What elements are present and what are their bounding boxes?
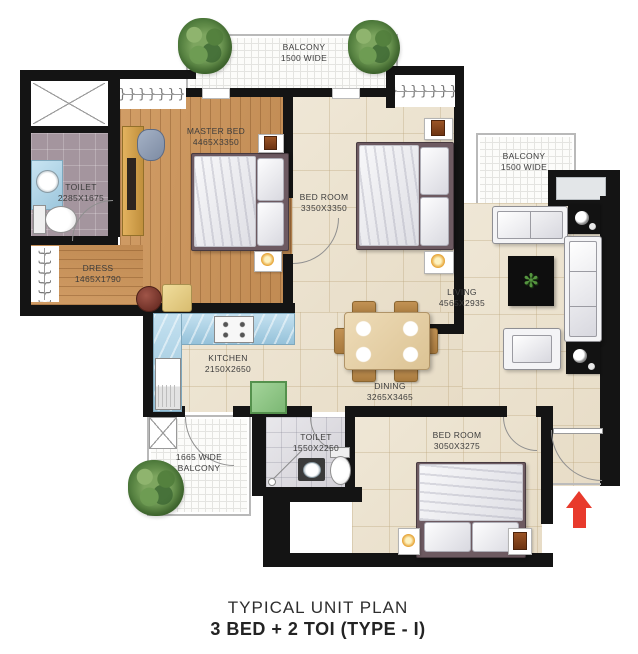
shaft-cross-icon <box>33 83 105 124</box>
side-table-lamp <box>566 342 600 374</box>
bed-pillow <box>420 147 449 195</box>
wall <box>541 406 553 524</box>
sofa-cushions <box>512 335 552 363</box>
balcony-door-gap <box>202 88 230 99</box>
room-dim: 1500 WIDE <box>281 53 327 64</box>
sofa-divider <box>569 271 597 272</box>
bed-pillow <box>424 522 471 552</box>
room-name: MASTER BED <box>187 126 245 137</box>
label-master-bed: MASTER BED 4465X3350 <box>187 126 245 147</box>
balcony-door-gap <box>332 88 360 99</box>
label-dining: DINING 3265X3465 <box>367 381 413 402</box>
sofa-cushions <box>569 241 597 337</box>
lamp-icon <box>261 253 274 266</box>
refrigerator <box>155 358 181 410</box>
room-name: BED ROOM <box>300 192 349 203</box>
shower-drain-icon <box>268 478 276 486</box>
stove-hob-icon <box>214 316 254 343</box>
sofa-divider <box>569 306 597 307</box>
lamp-icon <box>264 136 277 150</box>
dresser <box>127 158 136 210</box>
room-name: BALCONY <box>281 42 327 53</box>
room-dim: 1500 WIDE <box>501 162 547 173</box>
sofa-2-seater <box>492 206 568 244</box>
room-name: DRESS <box>75 263 121 274</box>
wall <box>108 70 196 79</box>
room-dim: 1465X1790 <box>75 274 121 285</box>
floor-plan: BALCONY 1500 WIDE BALCONY 1500 WIDE MAST… <box>0 0 638 654</box>
plan-title: TYPICAL UNIT PLAN <box>228 598 408 618</box>
coffee-table-plant <box>508 256 554 306</box>
lamp-icon <box>513 532 527 550</box>
room-dim: BALCONY <box>176 463 222 474</box>
label-toilet-1: TOILET 2285X1675 <box>58 182 104 203</box>
room-name: TOILET <box>58 182 104 193</box>
wardrobe-hangers-icon <box>31 246 59 302</box>
tree-icon <box>178 18 232 74</box>
wall <box>386 66 395 108</box>
lamp-icon <box>402 534 415 547</box>
room-name: BED ROOM <box>433 430 482 441</box>
washbasin-bowl <box>303 462 321 478</box>
side-table-lamp <box>568 204 600 234</box>
lamp-icon <box>431 120 445 136</box>
tree-icon <box>348 20 400 74</box>
bed-pillow <box>257 202 284 246</box>
shaft-box-icon <box>149 417 177 449</box>
label-dress: DRESS 1465X1790 <box>75 263 121 284</box>
room-name: TOILET <box>293 432 339 443</box>
washbasin-icon <box>36 170 59 193</box>
label-kitchen: KITCHEN 2150X2650 <box>205 353 251 374</box>
room-dim: 3350X3350 <box>300 203 349 214</box>
room-name: BALCONY <box>501 151 547 162</box>
label-bed-room-3: BED ROOM 3050X3275 <box>433 430 482 451</box>
wall <box>600 196 620 486</box>
entry-arrow-icon <box>573 507 586 528</box>
wc-bowl <box>330 456 351 485</box>
wardrobe-hangers-icon <box>120 79 186 109</box>
room-dim: 4565X2935 <box>439 298 485 309</box>
room-dim: 2285X1675 <box>58 193 104 204</box>
label-living: LIVING 4565X2935 <box>439 287 485 308</box>
bed-pillow <box>257 158 284 201</box>
wc-bowl <box>45 206 77 233</box>
label-toilet-2: TOILET 1550X2250 <box>293 432 339 453</box>
wall <box>345 406 507 417</box>
lamp-icon <box>431 254 445 268</box>
entry-arrow-icon <box>566 491 592 508</box>
entry-window <box>556 177 606 200</box>
wall <box>143 303 153 415</box>
label-balcony-top: BALCONY 1500 WIDE <box>281 42 327 63</box>
wc-icon <box>33 204 77 234</box>
room-dim: 3265X3465 <box>367 392 413 403</box>
wall <box>252 406 266 496</box>
dining-table <box>344 312 430 370</box>
room-name: DINING <box>367 381 413 392</box>
wardrobe-hangers-icon <box>395 75 455 107</box>
sofa-3-seater <box>564 236 602 342</box>
stool <box>136 286 162 312</box>
dress-chair <box>162 284 192 312</box>
wall <box>20 305 154 316</box>
door-leaf <box>553 428 603 434</box>
wall <box>282 487 362 502</box>
room-name: KITCHEN <box>205 353 251 364</box>
room-dim: 2150X2650 <box>205 364 251 375</box>
label-bed-room-2: BED ROOM 3350X3350 <box>300 192 349 213</box>
room-dim: 3050X3275 <box>433 441 482 452</box>
utility-unit <box>250 381 287 414</box>
wall <box>20 70 118 81</box>
entry-floor-line <box>553 483 601 485</box>
sofa-divider <box>530 211 531 239</box>
armchair <box>503 328 561 370</box>
plan-subtitle: 3 BED + 2 TOI (TYPE - I) <box>210 619 425 640</box>
room-name: 1665 WIDE <box>176 452 222 463</box>
desk-chair <box>137 129 165 161</box>
room-dim: 4465X3350 <box>187 137 245 148</box>
bed-blanket <box>419 464 523 521</box>
room-name: LIVING <box>439 287 485 298</box>
bed-blanket <box>359 145 419 246</box>
wall <box>20 126 118 133</box>
label-balcony-bottom: 1665 WIDE BALCONY <box>176 452 222 473</box>
bed-pillow <box>420 197 449 246</box>
wall <box>20 70 31 316</box>
label-balcony-right: BALCONY 1500 WIDE <box>501 151 547 172</box>
bed-blanket <box>194 156 256 247</box>
room-dim: 1550X2250 <box>293 443 339 454</box>
wall <box>386 66 464 75</box>
